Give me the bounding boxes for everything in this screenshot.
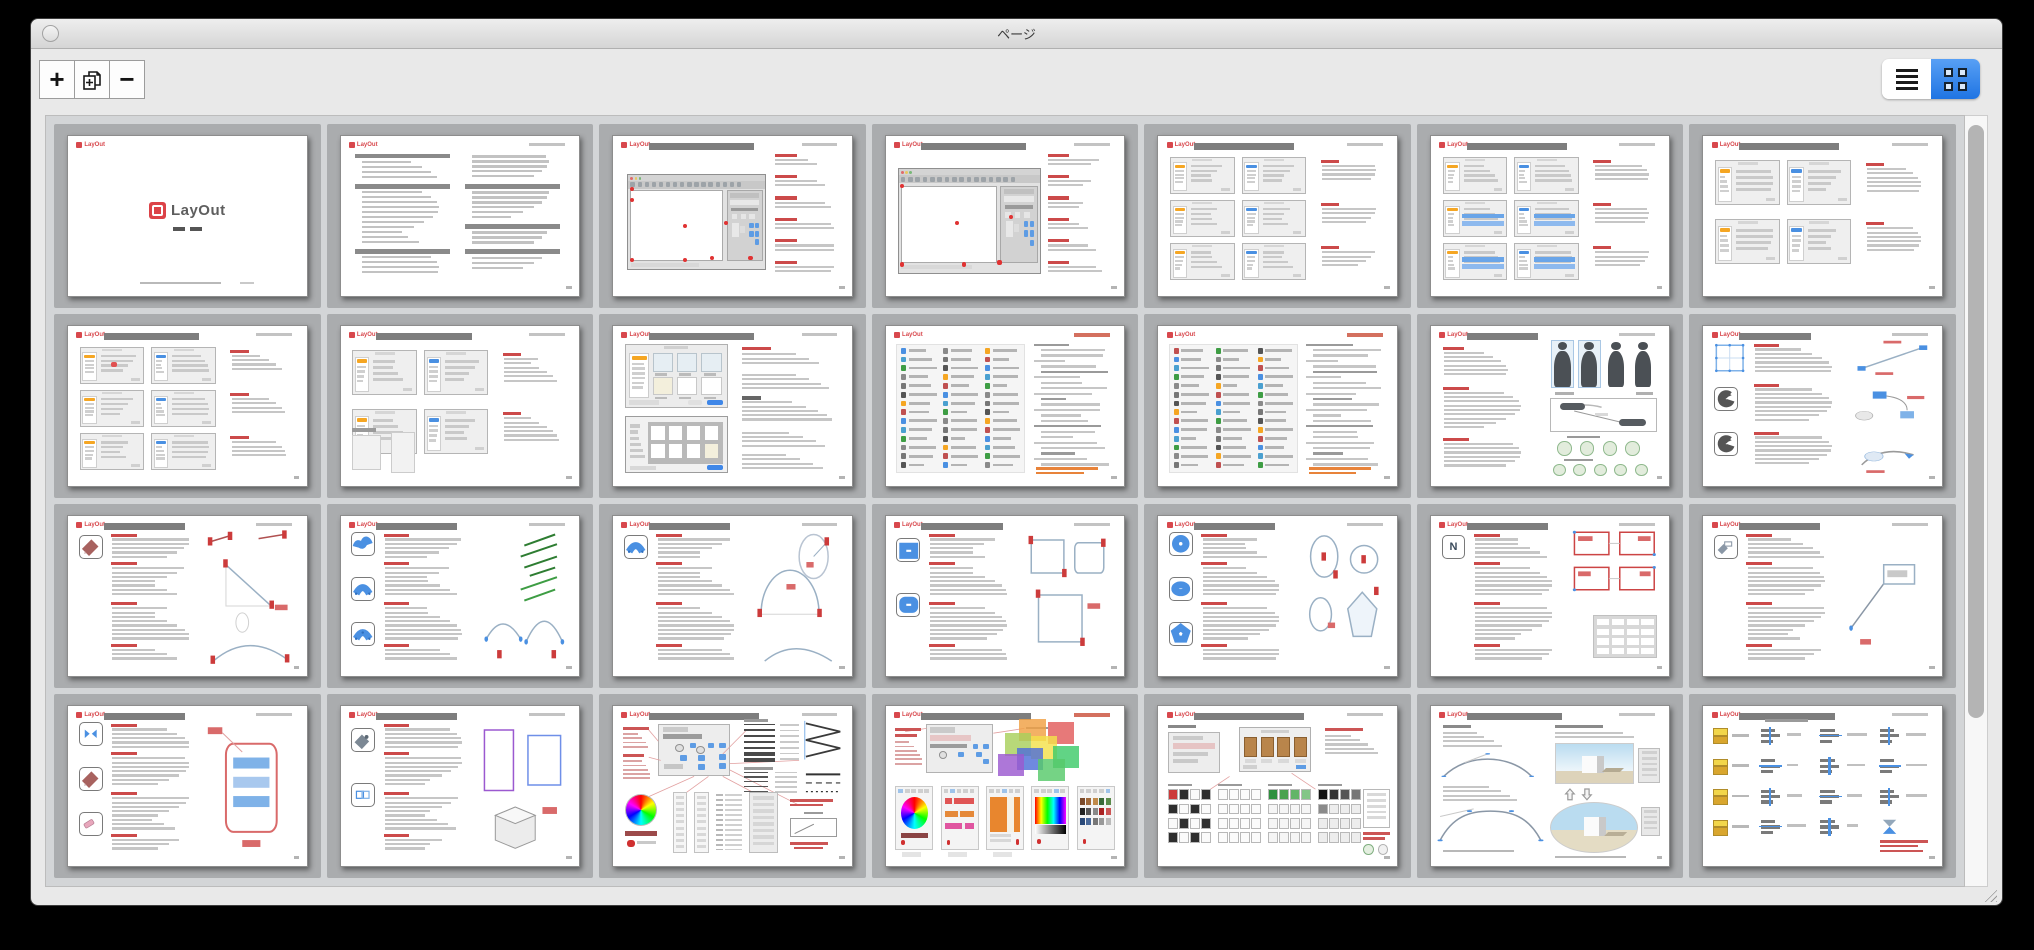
thumb-shape (742, 387, 829, 389)
delete-page-button[interactable]: − (109, 60, 145, 99)
thumb-shape (1445, 206, 1459, 235)
thumb-shape (101, 456, 126, 458)
thumb-shape (1347, 143, 1383, 146)
thumb-shape (154, 439, 168, 468)
thumb-shape (101, 408, 123, 410)
thumb-shape (1168, 818, 1178, 829)
thumb-shape (744, 729, 775, 730)
thumb-shape (1172, 625, 1189, 643)
thumb-shape (230, 393, 248, 396)
thumb-shape (901, 365, 906, 371)
thumb-shape (990, 839, 1012, 841)
add-page-button[interactable]: + (39, 60, 75, 99)
page-canvas: LayOut (1157, 515, 1398, 677)
thumb-shape (1181, 428, 1207, 431)
thumb-shape (112, 839, 179, 841)
page-thumbnail[interactable]: LayOut (327, 694, 594, 878)
thumb-shape (1306, 425, 1373, 427)
thumb-shape (1475, 556, 1547, 558)
page-thumbnail[interactable]: LayOutLayOut (54, 124, 321, 308)
thumb-shape (1465, 245, 1485, 247)
thumb-shape (362, 166, 422, 168)
thumb-shape (479, 719, 570, 857)
thumb-shape (1748, 657, 1805, 659)
thumb-shape (79, 535, 103, 559)
thumb-shape (1809, 162, 1829, 165)
page-thumbnail[interactable]: LayOut (1417, 124, 1684, 308)
thumb-shape (1009, 789, 1014, 793)
thumb-shape (725, 799, 742, 801)
thumb-shape (943, 348, 948, 354)
thumb-shape (1444, 464, 1506, 466)
thumb-shape (1792, 185, 1801, 188)
thumb-shape (1093, 808, 1098, 815)
page-thumbnail[interactable]: LayOut (1417, 314, 1684, 498)
page-thumbnail[interactable]: LayOut (599, 314, 866, 498)
thumb-shape (1555, 743, 1634, 785)
thumb-shape (362, 231, 401, 233)
thumb-shape (112, 543, 188, 545)
thumb-shape (679, 373, 691, 375)
thumb-shape (1191, 251, 1211, 253)
thumb-shape (775, 261, 796, 264)
thumb-shape (111, 362, 117, 366)
page-thumbnail[interactable]: LayOut (1689, 694, 1956, 878)
resize-handle[interactable] (1983, 888, 1997, 902)
thumb-shape (1595, 169, 1647, 171)
thumb-shape (156, 410, 163, 412)
thumb-shape (1037, 839, 1041, 844)
thumb-shape (902, 852, 921, 857)
thumb-shape (1851, 340, 1932, 378)
thumb-shape (504, 371, 547, 373)
thumb-shape (775, 154, 796, 157)
thumb-shape (1608, 351, 1624, 387)
thumb-shape (1581, 788, 1593, 801)
thumb-shape (901, 177, 906, 182)
page-thumbnail[interactable]: LayOut (1689, 124, 1956, 308)
thumb-shape (985, 418, 990, 424)
thumb-shape (1175, 220, 1183, 222)
thumb-shape (744, 786, 768, 787)
thumb-shape (725, 844, 742, 846)
thumb-shape: LayOut (1167, 332, 1196, 339)
thumb-shape (632, 382, 644, 385)
thumb-shape (111, 834, 137, 837)
thumb-shape (385, 810, 430, 812)
thumb-shape (755, 223, 759, 228)
thumb-shape (1444, 360, 1501, 362)
thumb-shape (1093, 789, 1098, 793)
thumb-shape (1739, 333, 1811, 340)
thumb-shape (802, 333, 838, 336)
thumb-shape (472, 155, 547, 157)
page-thumbnail[interactable]: LayOut (327, 124, 594, 308)
thumb-shape (1263, 170, 1290, 172)
page-thumbnail[interactable]: LayOut (599, 124, 866, 308)
thumb-shape (1014, 224, 1019, 232)
thumb-shape (1820, 790, 1834, 793)
thumb-shape (909, 384, 931, 387)
thumb-shape (1246, 165, 1256, 168)
thumb-shape (1732, 825, 1749, 828)
page-thumbnail[interactable]: LayOut (1689, 314, 1956, 498)
thumb-shape (656, 602, 682, 605)
thumb-shape (85, 454, 93, 456)
thumb-shape (1086, 808, 1091, 815)
thumb-shape (951, 384, 969, 387)
thumb-shape (1567, 436, 1600, 438)
thumb-shape (102, 392, 122, 394)
thumb-shape (112, 584, 155, 586)
thumb-shape (658, 633, 731, 635)
thumb-shape (1005, 205, 1033, 209)
thumb-shape (901, 833, 928, 838)
thumb-shape (677, 377, 697, 396)
thumb-shape (112, 733, 177, 735)
thumb-shape (630, 466, 656, 470)
thumb-shape (112, 576, 166, 578)
thumb-shape: LayOut (76, 712, 105, 719)
thumb-shape (232, 446, 282, 448)
thumb-shape (1181, 437, 1195, 440)
page-canvas: LayOut (1430, 325, 1671, 487)
page-thumbnail[interactable]: LayOut (599, 694, 866, 878)
thumb-shape (1715, 219, 1779, 264)
thumb-shape (985, 445, 990, 451)
page-thumbnail[interactable]: LayOut (872, 694, 1139, 878)
thumb-shape (1240, 818, 1250, 829)
thumb-shape (921, 143, 1026, 150)
scrollbar-thumb[interactable] (1968, 125, 1984, 718)
thumb-shape (943, 445, 948, 451)
thumb-shape (230, 436, 248, 439)
thumb-shape (1111, 476, 1117, 479)
page-thumbnail[interactable]: LayOut (327, 314, 594, 498)
thumb-shape (1179, 789, 1189, 800)
thumb-shape (1322, 178, 1372, 180)
thumb-shape (1048, 163, 1092, 165)
thumb-shape (1263, 223, 1288, 225)
thumb-shape (1445, 249, 1459, 278)
thumb-shape (744, 752, 775, 755)
thumb-shape (1223, 367, 1250, 370)
thumb-shape (804, 720, 842, 762)
thumb-shape (1892, 523, 1928, 526)
list-view-button[interactable] (1882, 59, 1931, 99)
page-thumbnail[interactable]: LayOut (872, 314, 1139, 498)
thumb-shape (985, 436, 990, 442)
thumb-shape (1581, 351, 1597, 387)
thumb-shape (1263, 165, 1295, 167)
thumb-shape (985, 462, 990, 468)
thumb-shape (1074, 523, 1110, 526)
thumb-shape (945, 798, 974, 804)
thumb-shape (1318, 784, 1342, 787)
thumb-shape (1279, 832, 1289, 843)
thumb-shape (1181, 419, 1208, 422)
thumb-shape (909, 393, 937, 396)
thumb-shape (1048, 239, 1069, 242)
thumb-shape (1766, 198, 1775, 201)
thumb-shape (985, 383, 990, 389)
thumb-shape (1263, 218, 1282, 220)
content-area: LayOutLayOutLayOutLayOutLayOutLayOutLayO… (45, 115, 1988, 887)
thumb-shape (354, 786, 371, 804)
thumb-shape (1313, 447, 1369, 449)
thumb-shape (1761, 759, 1775, 762)
thumb-shape (775, 163, 817, 165)
thumb-shape (385, 649, 440, 651)
thumb-shape (1644, 827, 1657, 829)
thumb-shape (1313, 398, 1352, 400)
thumb-shape (1713, 728, 1729, 744)
thumb-shape (1268, 804, 1278, 815)
thumb-shape (716, 809, 723, 811)
thumb-shape (112, 847, 157, 849)
thumb-shape (1041, 382, 1083, 384)
thumb-shape (1099, 789, 1104, 793)
thumb-shape (911, 789, 916, 793)
thumb-shape (1378, 844, 1389, 855)
thumb-shape (1754, 344, 1780, 347)
thumb-shape (1293, 274, 1302, 277)
page-thumbnail[interactable]: LayOut (1144, 314, 1411, 498)
thumb-shape (1519, 170, 1525, 172)
page-thumbnail[interactable]: LayOut (1417, 694, 1684, 878)
thumb-shape (909, 358, 933, 361)
thumb-shape (472, 196, 548, 198)
thumb-shape (1246, 251, 1256, 254)
thumb-shape (679, 397, 691, 399)
thumb-shape (373, 419, 392, 422)
thumb-shape (1223, 428, 1250, 431)
thumb-shape (1867, 232, 1918, 234)
thumb-shape (112, 572, 176, 574)
thumb-shape (632, 377, 645, 380)
thumb-shape (1445, 162, 1459, 191)
page-canvas: LayOut (1430, 135, 1671, 297)
thumb-shape (996, 177, 1001, 182)
thumb-shape (1048, 244, 1088, 246)
thumb-shape (1738, 162, 1758, 165)
thumb-shape (1444, 456, 1520, 458)
page-thumbnail[interactable]: LayOut (327, 504, 594, 688)
thumb-shape (1216, 392, 1221, 398)
thumb-shape (1619, 143, 1655, 146)
thumb-shape (839, 286, 845, 289)
thumb-shape (156, 403, 161, 405)
thumb-shape (376, 713, 457, 720)
thumb-shape (1534, 214, 1575, 219)
thumb-shape (1444, 409, 1520, 411)
scrollbar[interactable] (1965, 115, 1988, 887)
grid-view-button[interactable] (1931, 59, 1980, 99)
thumb-shape (1216, 462, 1221, 468)
thumb-shape (1820, 800, 1832, 803)
thumb-shape (1175, 174, 1184, 176)
thumb-shape (112, 580, 154, 582)
thumb-shape (802, 523, 838, 526)
thumb-shape (1464, 179, 1498, 181)
page-thumbnail[interactable]: LayOut (54, 314, 321, 498)
thumb-shape (1340, 818, 1350, 829)
thumb-shape (1309, 467, 1371, 470)
thumb-shape (1322, 260, 1366, 262)
thumb-shape (1048, 249, 1096, 251)
thumb-shape (915, 177, 920, 182)
duplicate-page-button[interactable] (74, 60, 110, 99)
thumb-shape (1755, 462, 1809, 464)
thumb-shape (445, 419, 474, 422)
thumb-shape (1828, 757, 1830, 775)
thumb-shape (930, 637, 987, 639)
thumb-shape (1475, 551, 1540, 553)
thumb-shape (895, 758, 922, 760)
thumb-shape (385, 551, 439, 553)
thumb-shape (1838, 257, 1847, 260)
thumb-shape (1038, 759, 1064, 781)
page-thumbnail[interactable]: LayOut (1144, 504, 1411, 688)
thumb-shape (1748, 637, 1800, 639)
thumb-shape (1808, 182, 1831, 185)
thumb-shape (1443, 795, 1510, 797)
thumb-shape (154, 396, 168, 425)
thumb-shape (1203, 616, 1279, 618)
thumb-shape (1203, 584, 1279, 586)
thumb-shape (104, 713, 185, 720)
thumb-shape (357, 418, 367, 422)
thumb-shape (1789, 167, 1803, 203)
thumb-shape (102, 349, 122, 351)
thumb-shape (429, 434, 438, 437)
thumb-shape (945, 177, 950, 182)
thumb-shape (742, 353, 796, 355)
thumb-shape (1595, 212, 1649, 214)
thumb-shape (1842, 529, 1933, 667)
page-thumbnail[interactable]: LayOut (54, 694, 321, 878)
thumb-shape (638, 182, 642, 187)
close-button[interactable] (42, 25, 59, 42)
page-thumbnail[interactable]: LayOut (1689, 504, 1956, 688)
thumb-shape: LayOut (76, 142, 105, 149)
thumb-shape (1191, 223, 1217, 225)
thumb-shape (385, 847, 425, 849)
page-thumbnail[interactable]: LayOutN (1417, 504, 1684, 688)
thumb-shape (943, 427, 948, 433)
thumb-shape (1216, 374, 1221, 380)
page-canvas: LayOut (67, 515, 308, 677)
thumb-shape (1787, 824, 1806, 827)
thumb-shape (1168, 789, 1178, 800)
thumb-shape (1888, 788, 1890, 806)
thumb-shape (974, 177, 979, 182)
thumb-shape (905, 171, 908, 174)
thumb-shape (630, 177, 633, 180)
thumb-shape (1223, 375, 1249, 378)
thumb-shape (1216, 427, 1221, 433)
thumb-shape (1929, 856, 1935, 859)
thumb-shape (901, 357, 906, 363)
thumb-shape (1808, 229, 1836, 232)
thumb-shape (1265, 455, 1293, 458)
thumb-shape (1048, 175, 1069, 178)
thumb-shape (1174, 401, 1179, 407)
page-canvas: LayOut (67, 325, 308, 487)
pages-panel-window: ページ + − (30, 18, 2003, 906)
thumb-shape (962, 822, 964, 831)
thumb-shape (1644, 810, 1657, 812)
thumb-shape (1191, 208, 1217, 210)
page-thumbnail[interactable]: LayOut (1144, 124, 1411, 308)
thumb-shape (780, 753, 799, 755)
thumb-shape (943, 392, 948, 398)
thumb-shape (929, 562, 955, 565)
thumb-shape (697, 827, 706, 830)
thumb-shape (676, 839, 685, 842)
thumb-shape (1247, 260, 1255, 262)
thumb-shape (445, 372, 469, 375)
thumb-shape (1313, 452, 1342, 454)
thumb-shape (1175, 224, 1182, 226)
thumb-shape (1313, 371, 1377, 373)
thumb-shape (385, 741, 462, 743)
thumb-shape (1748, 543, 1803, 545)
thumb-shape (1218, 784, 1242, 787)
thumb-shape (676, 808, 685, 811)
thumb-shape (85, 410, 94, 412)
thumb-shape (232, 398, 269, 400)
thumb-shape (112, 823, 164, 825)
page-thumbnail[interactable]: LayOut (54, 504, 321, 688)
thumb-shape (351, 783, 375, 807)
thumb-shape (1077, 786, 1115, 850)
page-thumbnail[interactable]: LayOut (872, 124, 1139, 308)
page-thumbnail[interactable]: LayOut (599, 504, 866, 688)
thumb-shape (1329, 818, 1339, 829)
thumb-shape (648, 422, 722, 464)
thumb-shape (1720, 244, 1729, 247)
thumb-shape (1514, 243, 1578, 280)
thumb-shape (1755, 445, 1832, 447)
thumb-shape (701, 377, 721, 396)
thumb-shape (1739, 523, 1820, 530)
thumb-shape (790, 842, 828, 845)
thumb-shape (82, 538, 99, 556)
thumb-shape (629, 353, 649, 398)
thumb-shape (206, 719, 297, 857)
thumb-shape (1573, 464, 1586, 477)
thumb-shape (930, 556, 985, 558)
thumb-shape (716, 804, 723, 806)
thumb-shape (429, 439, 437, 442)
thumb-shape (172, 369, 209, 371)
thumb-shape (1475, 543, 1518, 545)
thumb-shape (1534, 257, 1575, 262)
thumb-shape (676, 827, 685, 830)
thumb-shape (1041, 354, 1104, 356)
thumb-shape (1041, 420, 1089, 422)
thumb-shape (112, 737, 184, 739)
thumb-shape (1597, 629, 1609, 635)
thumb-shape (504, 380, 557, 382)
thumb-shape (385, 839, 442, 841)
page-thumbnail[interactable]: LayOut (1144, 694, 1411, 878)
page-thumbnail[interactable]: LayOut (872, 504, 1139, 688)
thumb-shape (790, 804, 823, 807)
thumb-shape (112, 547, 184, 549)
thumb-shape (1847, 794, 1863, 797)
